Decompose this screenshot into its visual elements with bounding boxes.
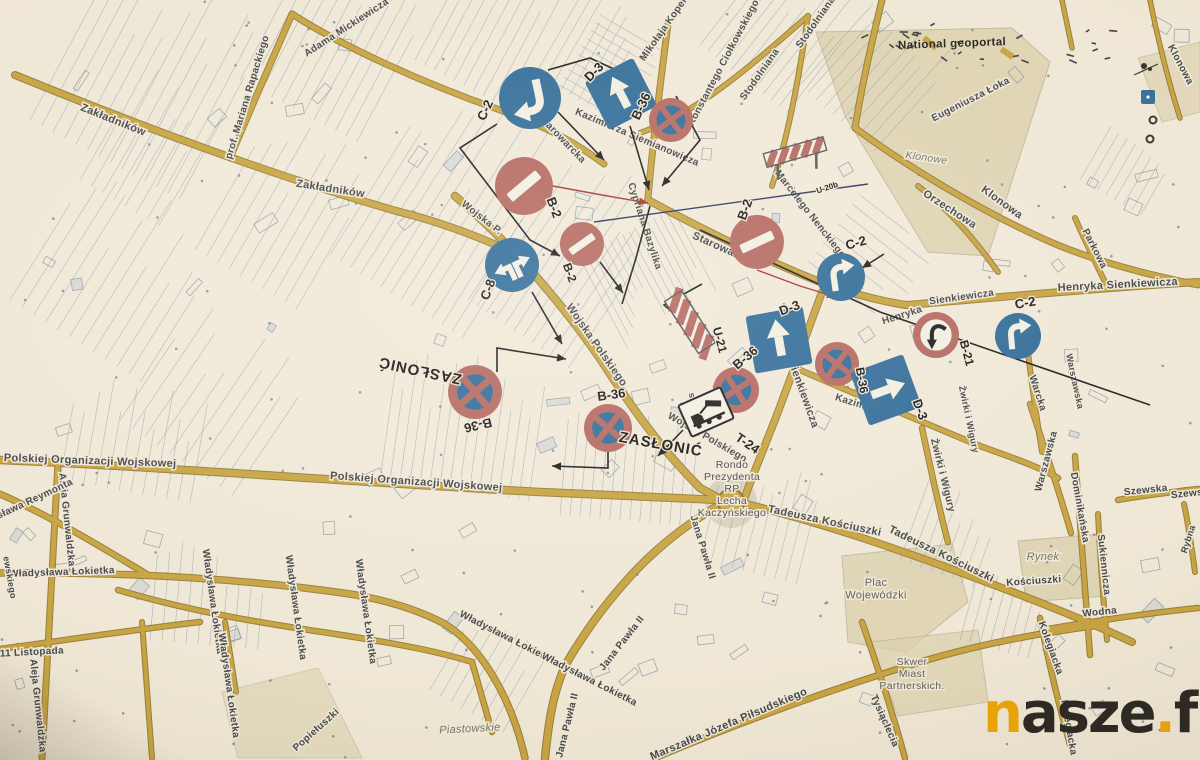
area-label: Prezydenta — [704, 471, 760, 483]
naszefm-watermark: nasze.fm — [983, 686, 1200, 742]
rynek-square — [1018, 534, 1106, 602]
area-label: Kaczyńskiego — [698, 507, 766, 519]
sign-b21-1 — [913, 312, 959, 358]
area-label: RP — [724, 483, 739, 495]
area-label: Miast — [899, 668, 926, 680]
area-label: Wojewódzki — [845, 590, 907, 602]
area-label: Partnerskich. — [879, 680, 944, 692]
city-map: ZakładnikówZakładnikówprof. Mariana Rapa… — [0, 0, 1200, 760]
watermark-asze: asze — [1021, 681, 1155, 746]
sign-d3-2 — [745, 306, 812, 373]
area-label: Lecha — [717, 495, 747, 507]
area-label: Skwer — [897, 656, 928, 668]
watermark-n: n — [983, 681, 1021, 746]
area-label: Plac — [865, 577, 888, 589]
marker-gear-icon — [1141, 63, 1147, 69]
watermark-dot: . — [1155, 681, 1174, 746]
area-label: Rondo — [716, 459, 748, 471]
area-label: Rynek — [1027, 551, 1060, 563]
watermark-fm: fm — [1174, 681, 1200, 746]
map-photo: ZakładnikówZakładnikówprof. Mariana Rapa… — [0, 0, 1200, 760]
